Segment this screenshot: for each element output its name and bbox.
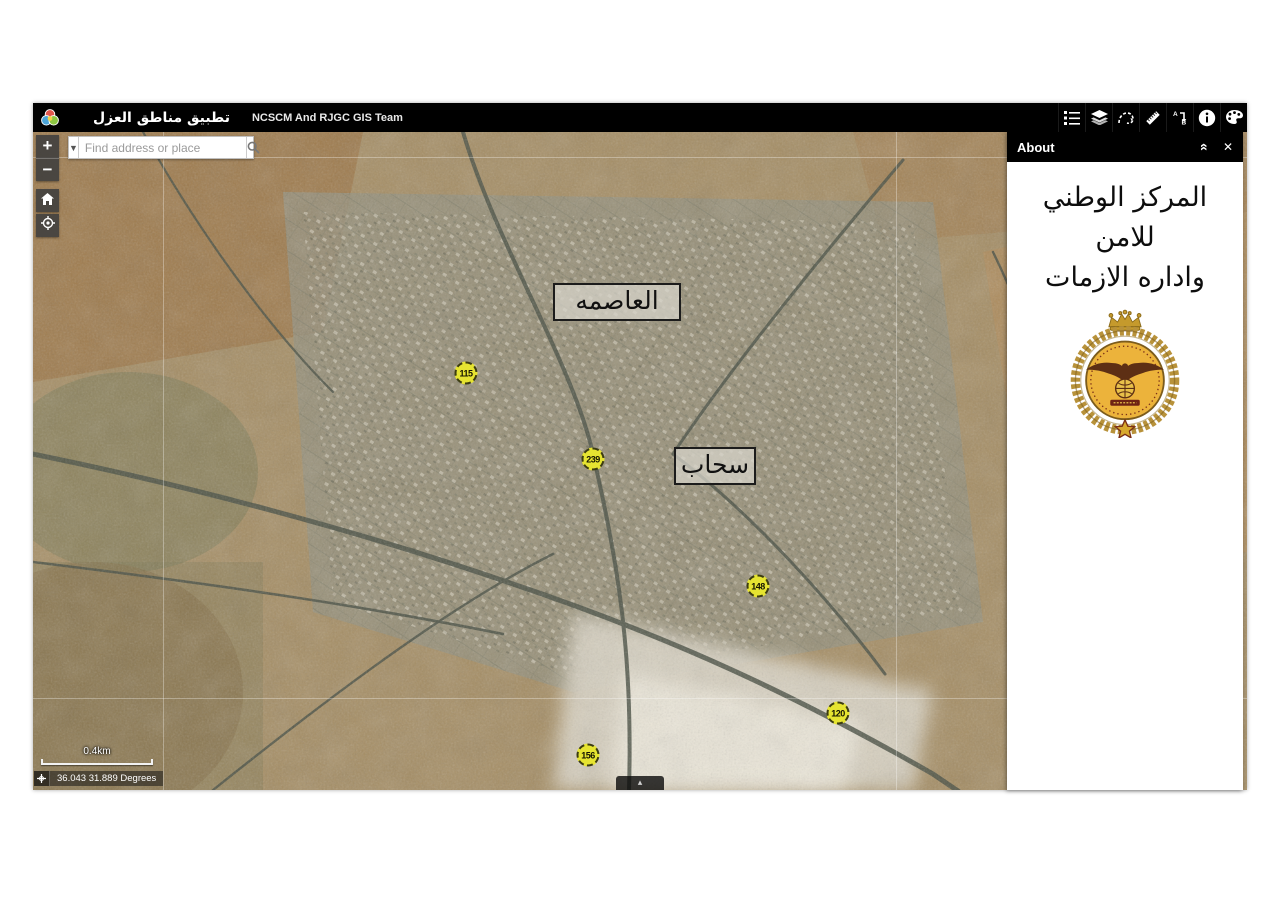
- graticule-line: [896, 132, 897, 790]
- search-dropdown-icon[interactable]: ▼: [69, 137, 79, 158]
- attribution-expand-button[interactable]: ▴: [616, 776, 664, 790]
- about-text-line: للامن: [1007, 218, 1243, 258]
- scale-line: [41, 759, 153, 765]
- road-shield: 120: [827, 702, 850, 725]
- search-input[interactable]: [79, 137, 246, 158]
- about-panel-header: About « ✕: [1007, 132, 1243, 162]
- collapse-panel-icon[interactable]: «: [1198, 143, 1212, 151]
- chevron-up-icon: ▴: [638, 777, 643, 787]
- about-panel-body: المركز الوطني للامن واداره الازمات: [1007, 162, 1243, 790]
- place-label-capital: العاصمه: [553, 283, 681, 321]
- road-shield: 148: [747, 575, 770, 598]
- about-text-line: المركز الوطني: [1007, 178, 1243, 218]
- zoom-in-button[interactable]: +: [36, 135, 59, 158]
- road-shield: 115: [455, 362, 478, 385]
- draw-icon[interactable]: [1112, 103, 1139, 132]
- search-widget: ▼: [68, 136, 254, 159]
- coordinate-widget: 36.043 31.889 Degrees: [34, 771, 163, 786]
- measure-icon[interactable]: [1139, 103, 1166, 132]
- place-label-sahab: سحاب: [674, 447, 756, 485]
- about-panel: About « ✕ المركز الوطني للامن واداره الا…: [1007, 132, 1243, 790]
- about-text-line: واداره الازمات: [1007, 258, 1243, 298]
- scale-label: 0.4km: [41, 746, 153, 757]
- svg-text:B: B: [1181, 120, 1186, 126]
- road-shield: 156: [577, 744, 600, 767]
- panel-title: About: [1017, 140, 1055, 155]
- layers-icon[interactable]: [1085, 103, 1112, 132]
- locate-button[interactable]: [36, 214, 59, 237]
- road-shield: 239: [582, 448, 605, 471]
- zoom-out-button[interactable]: −: [36, 158, 59, 181]
- home-icon: [41, 193, 54, 205]
- app-title: تطبيق مناطق العزل: [93, 110, 230, 126]
- graticule-line: [163, 132, 164, 790]
- ncscm-emblem: [1058, 304, 1192, 438]
- info-icon[interactable]: [1193, 103, 1220, 132]
- scale-bar: 0.4km: [41, 746, 153, 765]
- basemap-gallery-icon[interactable]: [1220, 103, 1247, 132]
- home-button[interactable]: [36, 189, 59, 212]
- app-logo-icon: [39, 107, 61, 129]
- svg-text:A: A: [1173, 111, 1178, 118]
- close-panel-icon[interactable]: ✕: [1223, 141, 1233, 153]
- zoom-control: + −: [36, 135, 59, 181]
- widget-toolbar: AB: [1058, 103, 1247, 132]
- locate-icon: [41, 216, 55, 230]
- legend-icon[interactable]: [1058, 103, 1085, 132]
- crosshair-icon[interactable]: [34, 771, 50, 786]
- about-text: المركز الوطني للامن واداره الازمات: [1007, 178, 1243, 298]
- app-header: تطبيق مناطق العزل NCSCM And RJGC GIS Tea…: [33, 103, 1247, 132]
- directions-icon[interactable]: AB: [1166, 103, 1193, 132]
- magnifier-icon[interactable]: [246, 137, 260, 158]
- gis-app-window: تطبيق مناطق العزل NCSCM And RJGC GIS Tea…: [33, 103, 1247, 790]
- coordinate-readout: 36.043 31.889 Degrees: [50, 773, 163, 784]
- app-subtitle: NCSCM And RJGC GIS Team: [252, 112, 403, 124]
